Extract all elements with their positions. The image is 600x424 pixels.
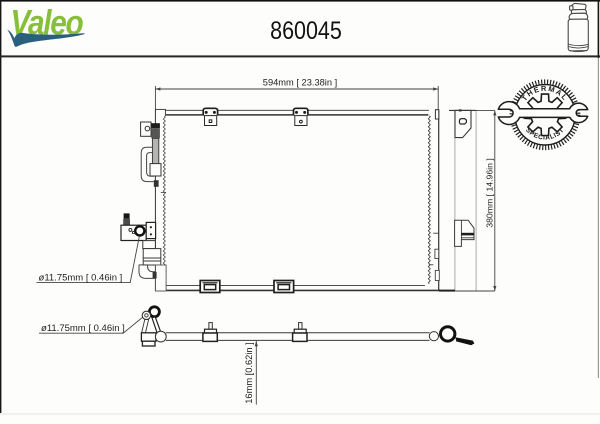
- svg-text:860045: 860045: [270, 16, 342, 44]
- svg-text:ø11.75mm [ 0.46in ]: ø11.75mm [ 0.46in ]: [41, 323, 125, 334]
- svg-text:ø11.75mm [ 0.46in ]: ø11.75mm [ 0.46in ]: [39, 273, 123, 284]
- svg-text:380mm [ 14.96in ]: 380mm [ 14.96in ]: [484, 158, 494, 228]
- svg-text:594mm [ 23.38in ]: 594mm [ 23.38in ]: [263, 78, 337, 88]
- svg-text:16mm [0.62in ]: 16mm [0.62in ]: [244, 342, 254, 404]
